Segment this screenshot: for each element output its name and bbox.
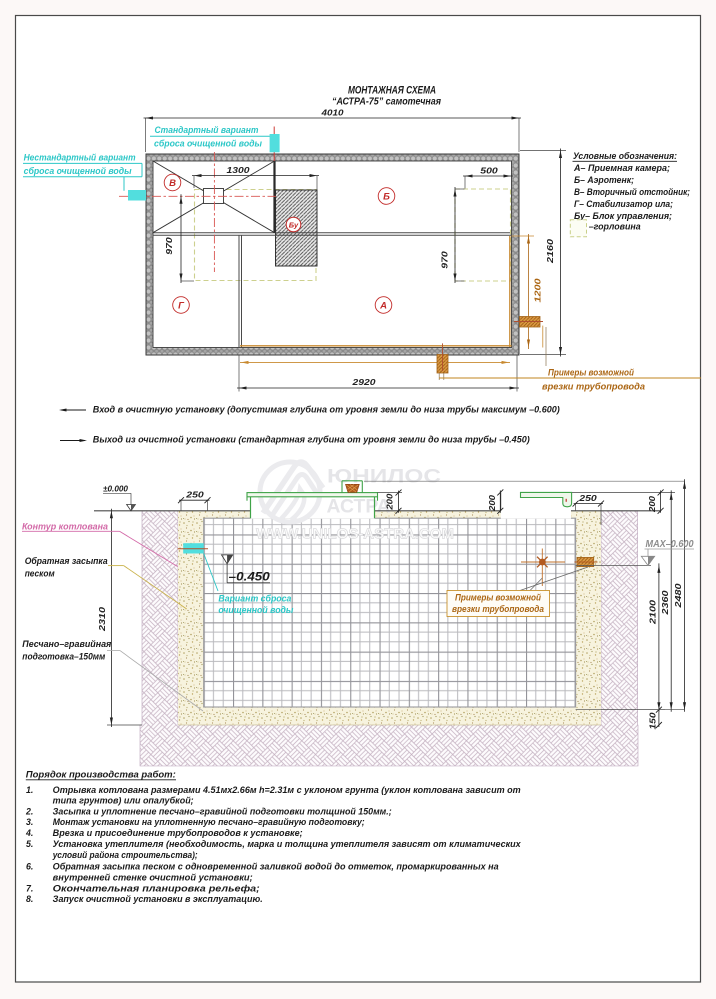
svg-text:Б– Аэротенк;: Б– Аэротенк;	[574, 175, 634, 185]
svg-text:Вариант сброса: Вариант сброса	[218, 593, 291, 604]
svg-text:970: 970	[164, 237, 174, 255]
svg-text:Примеры возможной: Примеры возможной	[548, 367, 634, 377]
svg-text:–горловина: –горловина	[589, 222, 641, 232]
svg-text:“АСТРА-75” самотечная: “АСТРА-75” самотечная	[332, 97, 441, 108]
svg-text:Засыпка и уплотнение песчано–г: Засыпка и уплотнение песчано–гравийной п…	[53, 806, 392, 816]
svg-text:1200: 1200	[533, 278, 543, 302]
svg-text:Г– Стабилизатор ила;: Г– Стабилизатор ила;	[574, 199, 673, 209]
svg-text:В– Вторичный отстойник;: В– Вторичный отстойник;	[574, 187, 690, 197]
svg-text:Условные обозначения:: Условные обозначения:	[573, 151, 677, 161]
svg-text:МОНТАЖНАЯ СХЕМА: МОНТАЖНАЯ СХЕМА	[348, 85, 436, 97]
svg-text:Вход в очистную установку (доп: Вход в очистную установку (допустимая гл…	[93, 404, 560, 414]
svg-text:В: В	[169, 178, 176, 189]
svg-text:5.: 5.	[26, 839, 33, 849]
svg-text:песком: песком	[25, 568, 55, 579]
svg-text:Врезка и присоединение трубопр: Врезка и присоединение трубопроводов к у…	[53, 828, 303, 838]
svg-text:Бу: Бу	[289, 221, 299, 230]
svg-text:Стандартный вариант: Стандартный вариант	[155, 125, 259, 135]
svg-text:очищенной воды: очищенной воды	[218, 605, 293, 616]
svg-text:2310: 2310	[97, 607, 107, 633]
svg-text:сброса очищенной воды: сброса очищенной воды	[154, 138, 262, 148]
svg-text:4010: 4010	[320, 108, 343, 118]
svg-text:500: 500	[480, 166, 498, 176]
svg-text:200: 200	[386, 493, 395, 511]
svg-text:Окончательная планировка релье: Окончательная планировка рельефа;	[53, 883, 260, 893]
svg-text:2920: 2920	[351, 377, 376, 387]
svg-text:типа грунтов) или опалубкой;: типа грунтов) или опалубкой;	[53, 795, 194, 805]
svg-text:А: А	[379, 301, 387, 312]
svg-text:2160: 2160	[545, 239, 555, 265]
svg-text:Бу– Блок управления;: Бу– Блок управления;	[574, 211, 672, 221]
svg-text:Нестандартный вариант: Нестандартный вариант	[24, 153, 136, 163]
svg-text:МАХ–0.600: МАХ–0.600	[646, 539, 694, 550]
svg-text:6.: 6.	[26, 862, 33, 872]
svg-text:1.: 1.	[26, 785, 33, 795]
svg-text:ЮНИЛОС: ЮНИЛОС	[327, 467, 441, 488]
svg-text:250: 250	[185, 489, 204, 499]
svg-text:250: 250	[578, 493, 597, 503]
svg-text:Песчано–гравийная: Песчано–гравийная	[22, 639, 111, 650]
svg-text:970: 970	[440, 251, 450, 269]
svg-text:Контур котлована: Контур котлована	[22, 521, 108, 532]
svg-text:200: 200	[648, 495, 657, 513]
svg-text:3.: 3.	[26, 817, 33, 827]
svg-text:2100: 2100	[648, 600, 658, 626]
svg-text:внутренней стенке очистной уст: внутренней стенке очистной установки;	[53, 872, 253, 882]
svg-text:Обратная засыпка песком с одно: Обратная засыпка песком с одновременной …	[53, 862, 499, 872]
svg-text:Обратная засыпка: Обратная засыпка	[25, 556, 108, 567]
svg-text:7.: 7.	[26, 883, 33, 893]
svg-text:2360: 2360	[660, 590, 670, 616]
svg-text:±0.000: ±0.000	[103, 484, 128, 494]
svg-text:8.: 8.	[26, 894, 33, 904]
svg-text:Монтаж установки на уплотненну: Монтаж установки на уплотненную песчано–…	[53, 817, 365, 827]
svg-text:150: 150	[649, 712, 658, 730]
svg-text:Порядок производства работ:: Порядок производства работ:	[26, 770, 176, 780]
svg-text:2480: 2480	[673, 583, 683, 609]
svg-text:4.: 4.	[25, 828, 33, 838]
svg-text:Отрывка котлована размерами 4.: Отрывка котлована размерами 4.51мх2.66м …	[53, 785, 521, 795]
svg-text:АСТРА: АСТРА	[327, 497, 391, 518]
svg-text:сброса очищенной воды: сброса очищенной воды	[24, 166, 132, 176]
svg-text:1300: 1300	[227, 165, 250, 175]
svg-text:Установка утеплителя (необходи: Установка утеплителя (необходимость, мар…	[53, 839, 522, 849]
svg-text:Выход из очистной установки (с: Выход из очистной установки (стандартная…	[93, 435, 530, 445]
svg-text:подготовка–150мм: подготовка–150мм	[22, 651, 105, 662]
svg-text:врезки трубопровода: врезки трубопровода	[542, 381, 645, 391]
svg-text:Б: Б	[383, 192, 390, 203]
svg-text:А– Приемная камера;: А– Приемная камера;	[573, 163, 670, 173]
svg-text:Примеры возможной: Примеры возможной	[455, 593, 541, 603]
svg-text:врезки трубопровода: врезки трубопровода	[452, 604, 544, 614]
svg-text:2.: 2.	[25, 806, 33, 816]
svg-text:WWW.UNILOS-ASTRA.COM: WWW.UNILOS-ASTRA.COM	[256, 527, 454, 543]
svg-text:–0.450: –0.450	[229, 571, 271, 583]
svg-text:Запуск очистной установки в эк: Запуск очистной установки в эксплуатацию…	[53, 894, 263, 904]
svg-text:условий района строительства);: условий района строительства);	[52, 850, 198, 860]
svg-text:200: 200	[488, 494, 497, 512]
